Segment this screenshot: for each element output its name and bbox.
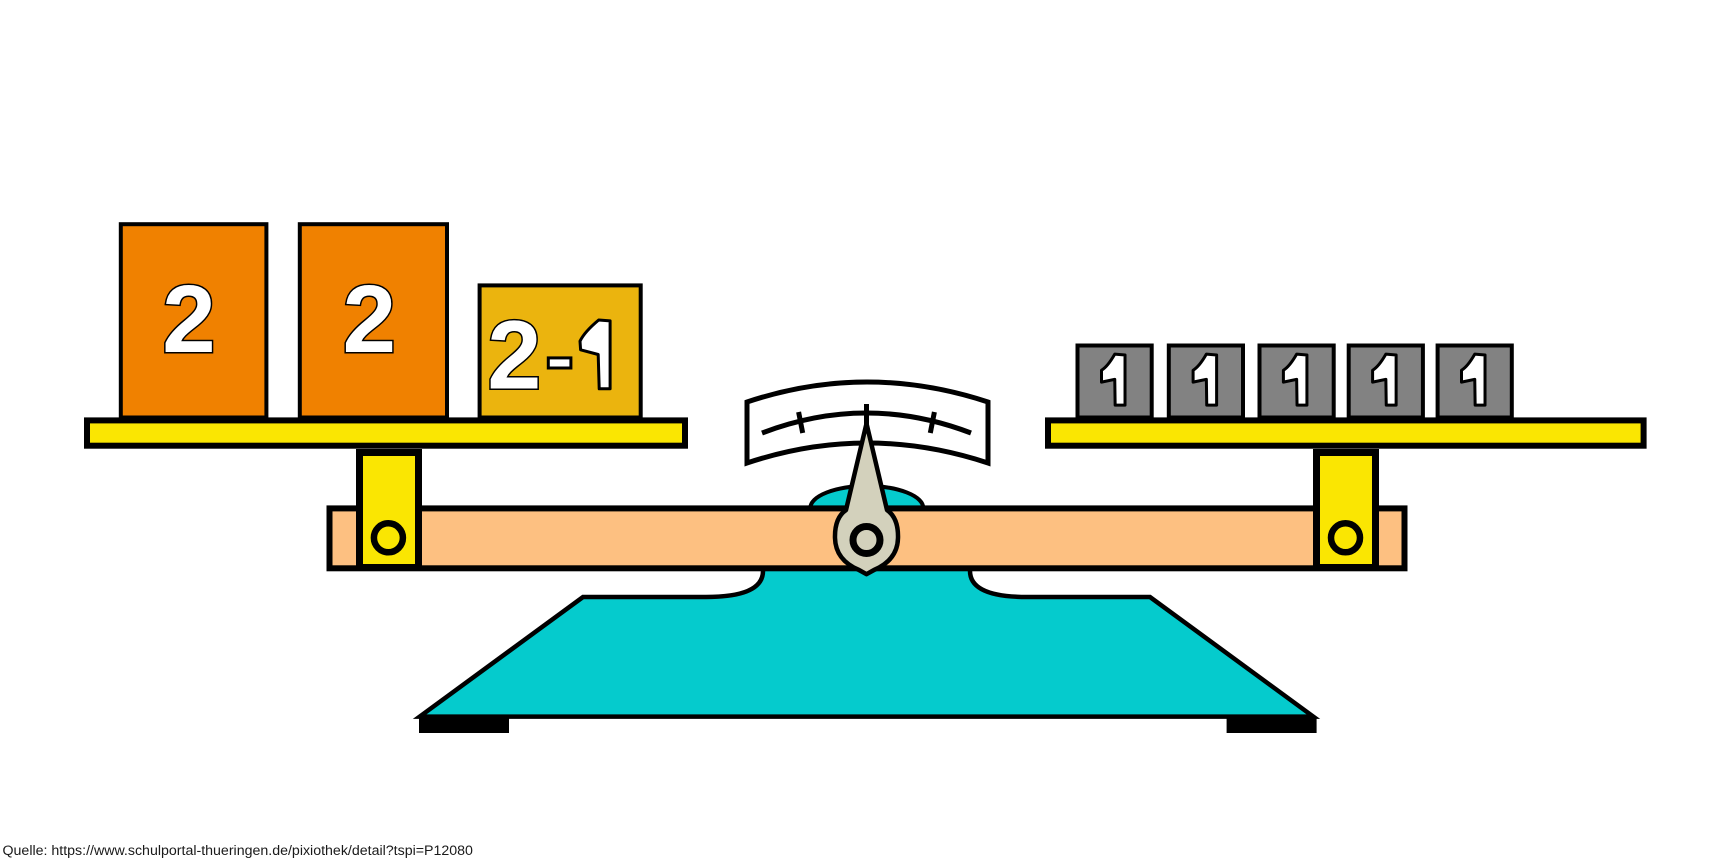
svg-text:2: 2: [343, 266, 396, 373]
svg-text:Quelle: https://www.schulporta: Quelle: https://www.schulportal-thuering…: [3, 843, 474, 859]
svg-text:2: 2: [487, 300, 541, 409]
svg-text:2: 2: [162, 266, 215, 373]
